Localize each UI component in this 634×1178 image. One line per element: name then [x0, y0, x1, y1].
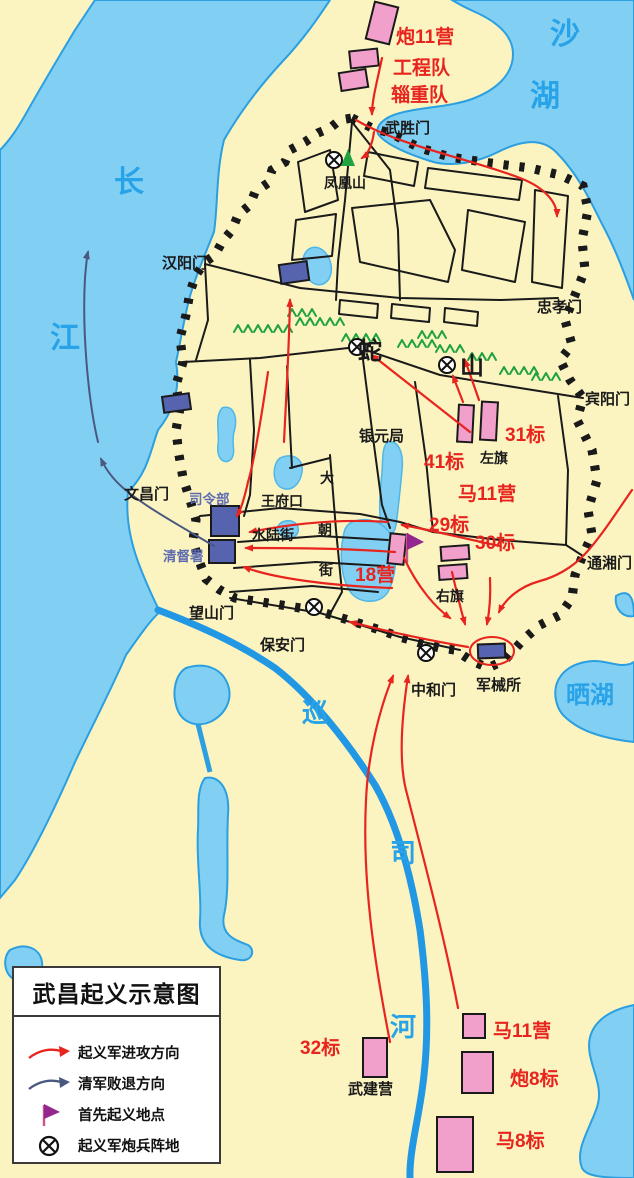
legend-label: 清军败退方向: [78, 1073, 165, 1094]
label-junxiesuo: 军械所: [476, 676, 521, 694]
army-unit-box-ma-11-ying-south: [463, 1014, 485, 1038]
label-ma-11-ying-south: 马11营: [493, 1019, 551, 1042]
legend: 武昌起义示意图 起义军进攻方向 清军败退方向 首先起义地点 起义军炮兵阵地: [12, 966, 221, 1164]
label-31-biao: 31标: [505, 424, 545, 446]
label-xunsihe-3: 河: [390, 1012, 416, 1042]
label-gongcheng-dui: 工程队: [393, 56, 451, 79]
riverside-building: [162, 393, 191, 413]
label-ma-11-ying: 马11营: [458, 482, 516, 505]
label-shahu-1: 沙: [550, 18, 580, 51]
label-pao-8-biao: 炮8标: [510, 1067, 559, 1090]
label-dachaojie-2: 朝: [318, 522, 332, 538]
label-zhonghe-gate: 中和门: [411, 681, 456, 699]
label-zuoqi: 左旗: [479, 450, 508, 466]
label-she-hill-1: 蛇: [358, 337, 382, 365]
label-tongxiang-gate: 通湘门: [587, 554, 632, 572]
map-title: 武昌起义示意图: [14, 968, 219, 1017]
artillery-position-icon: [20, 1134, 78, 1158]
label-xunsihe-1: 巡: [302, 698, 328, 728]
map-canvas: 长江沙湖晒湖巡司河武胜门汉阳门忠孝门宾阳门通湘门文昌门望山门保安门中和门凤凰山蛇…: [0, 0, 634, 1178]
legend-label: 首先起义地点: [78, 1104, 165, 1125]
label-ma-8-biao: 马8标: [496, 1130, 545, 1152]
army-unit-box-gongcheng-dui: [349, 49, 379, 69]
silingbu-building: [211, 506, 239, 536]
label-xunsihe-2: 司: [390, 838, 416, 868]
label-yinyuanju: 银元局: [359, 427, 404, 445]
label-32-biao: 32标: [300, 1037, 340, 1059]
label-youqi: 右旗: [435, 588, 464, 604]
label-pao-11-ying: 炮11营: [396, 25, 454, 48]
label-30-biao: 30标: [475, 532, 515, 554]
label-41-biao: 41标: [424, 451, 464, 473]
legend-row-retreat: 清军败退方向: [20, 1068, 213, 1099]
first-uprising-flag-icon: [20, 1102, 78, 1128]
army-unit-box-you-qi-1: [441, 545, 470, 561]
army-unit-box-pao-8-biao: [462, 1052, 493, 1093]
legend-label: 起义军炮兵阵地: [78, 1135, 180, 1156]
army-unit-box-zizhong-dui: [339, 69, 368, 91]
label-binyang-gate: 宾阳门: [585, 390, 630, 408]
hanyangmen-building: [279, 261, 309, 284]
legend-row-attack: 起义军进攻方向: [20, 1037, 213, 1068]
junxiesuo-building: [478, 644, 505, 659]
label-shaihu: 晒湖: [566, 682, 614, 709]
army-unit-box-ma-8-biao: [437, 1117, 473, 1172]
label-wangshan-gate: 望山门: [189, 604, 234, 622]
label-shahu-2: 湖: [530, 80, 560, 113]
retreat-arrow-icon: [20, 1074, 78, 1094]
label-wusheng-gate: 武胜门: [385, 119, 430, 137]
label-wujianying: 武建营: [348, 1080, 393, 1098]
army-unit-box-gongcheng-ying-18: [387, 533, 406, 565]
label-29-biao: 29标: [429, 514, 469, 536]
label-fenghuang-hill: 凤凰山: [324, 175, 366, 191]
label-baoan-gate: 保安门: [259, 636, 305, 654]
legend-row-flag: 首先起义地点: [20, 1099, 213, 1130]
legend-row-artillery: 起义军炮兵阵地: [20, 1130, 213, 1161]
label-dachaojie-1: 大: [320, 470, 334, 486]
artillery-position-icon: [439, 357, 455, 373]
legend-items: 起义军进攻方向 清军败退方向 首先起义地点 起义军炮兵阵地: [14, 1017, 219, 1161]
label-wenchang-gate: 文昌门: [124, 485, 169, 503]
label-dachaojie-3: 街: [318, 562, 333, 578]
qingdushu-building: [209, 540, 235, 563]
sw-lake-1: [174, 666, 229, 725]
label-zhongxiao-gate: 忠孝门: [537, 298, 582, 316]
artillery-position-icon: [418, 645, 434, 661]
label-silingbu: 司令部: [189, 491, 230, 507]
label-18-ying: 18营: [355, 563, 395, 586]
army-unit-box-wu-jian-ying: [363, 1038, 387, 1077]
artillery-position-icon: [326, 152, 342, 168]
attack-arrow-icon: [20, 1043, 78, 1063]
label-hanyang-gate: 汉阳门: [162, 254, 207, 272]
label-changjiang-2: 江: [50, 322, 80, 355]
army-unit-box-31-biao-2: [480, 402, 498, 441]
label-changjiang-1: 长: [114, 166, 144, 199]
label-wangfukou: 王府口: [261, 493, 303, 509]
artillery-position-icon: [306, 599, 322, 615]
label-she-hill-2: 山: [460, 353, 484, 380]
label-zizhong-dui: 辎重队: [391, 83, 449, 106]
label-qingdushu: 清督署: [163, 548, 204, 564]
label-shuilujie: 水陆街: [252, 527, 294, 543]
legend-label: 起义军进攻方向: [78, 1042, 180, 1063]
